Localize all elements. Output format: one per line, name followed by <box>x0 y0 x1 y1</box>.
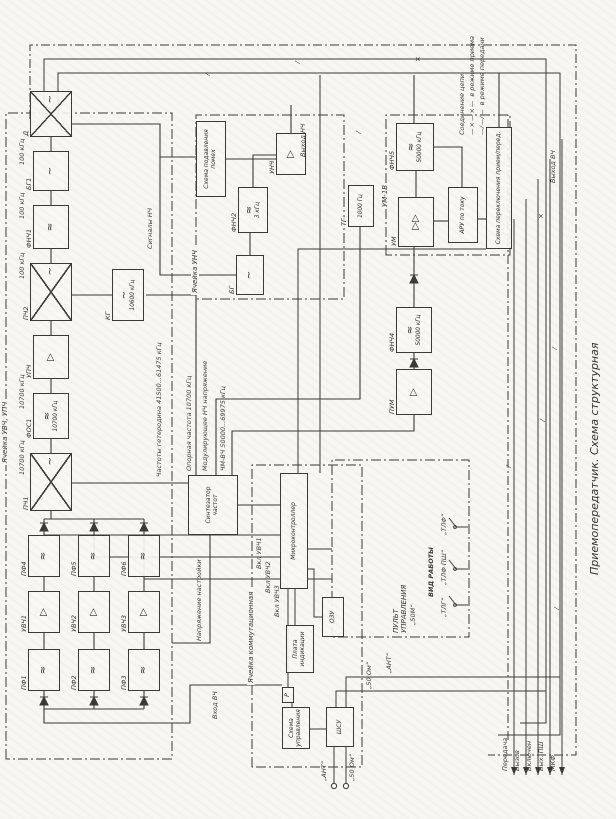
block-fnch5-freq: 50000 кГц <box>417 132 423 163</box>
block-unch-label: УНЧ <box>268 160 276 175</box>
detector-icon: ~ <box>46 95 56 103</box>
block-fnch2-freq: 3 кГц <box>255 202 261 218</box>
label-mode-tlf: „ТЛФ“ <box>441 514 448 535</box>
block-upch-label: УПЧ <box>25 364 33 379</box>
label-line-ant: „АНТ“ <box>386 653 393 673</box>
block-pf1-label: ПФ1 <box>20 674 28 691</box>
amplifier-icon: ▷ <box>89 608 99 616</box>
block-tg-label: ТГ <box>340 217 348 227</box>
label-rf-output: Выход ВЧ <box>550 150 557 183</box>
block-pf4: ПФ4 ≈ <box>28 535 60 577</box>
bandpass-filter-icon: ≈ <box>39 666 49 674</box>
block-pf2-label: ПФ2 <box>70 674 78 691</box>
block-uvch2: УВЧ2 ▷ <box>78 591 110 633</box>
block-pf4-label: ПФ4 <box>20 560 28 577</box>
label-enable-uvch2: Вкл УВЧ2 <box>265 561 272 593</box>
block-fos1-freq: 10700 кГц <box>53 401 59 432</box>
label-reference-freq: Опорная частота 10700 кГц <box>186 376 193 471</box>
bandpass-filter-icon: ≈ <box>139 552 149 560</box>
label-f100a: 100 кГц <box>19 253 26 279</box>
block-fnch1-label: ФНЧ1 <box>25 228 33 249</box>
crystal-oscillator-icon: ~ <box>120 291 130 299</box>
mixer-icon: ~ <box>46 267 56 275</box>
legend-rx-text: в режиме приема <box>468 36 476 97</box>
block-pum-label: ПУМ <box>388 399 396 415</box>
block-fnch2: ФНЧ2 ≈ 3 кГц <box>238 187 268 233</box>
label-mode-tlg: „ТЛГ“ <box>441 598 448 617</box>
label-output-transmit: Передача <box>502 738 509 771</box>
block-noise-suppressor: Схема подавления помех <box>196 121 226 197</box>
block-pch1: ПЧ1 ~ <box>30 453 72 511</box>
block-control-circuit: Схема управления <box>282 707 310 749</box>
svg-text:⁄: ⁄ <box>551 346 559 351</box>
block-pf6-label: ПФ6 <box>120 560 128 577</box>
lowpass-filter-icon: ≈ <box>46 223 56 231</box>
block-bg-label: БГ <box>228 285 236 295</box>
panel-contact-symbols <box>449 518 468 606</box>
label-enable-uvch1: Вкл УВЧ1 <box>256 537 263 569</box>
label-enable-uvch3: Вкл УВЧ3 <box>274 585 281 617</box>
block-pf6: ПФ6 ≈ <box>128 535 160 577</box>
block-d-label: Д <box>22 130 30 137</box>
cell-label-pa: УМ-1В <box>381 183 389 209</box>
block-bg1-label: БГ1 <box>25 177 33 191</box>
block-tg: ТГ 1000 Гц <box>348 185 374 227</box>
label-mode-group: ВИД РАБОТЫ <box>428 547 435 597</box>
legend-rx-row: —×—×—в режиме приема <box>468 7 478 135</box>
lowpass-filter-icon: ≈ <box>245 206 255 214</box>
block-relay: Р <box>282 687 294 703</box>
block-ram: ОЗУ <box>322 597 344 637</box>
block-uvch1-label: УВЧ1 <box>20 614 28 633</box>
amplifier-icon: ▷ <box>286 150 296 158</box>
block-microcontroller: Микроконтроллер <box>280 473 308 589</box>
label-f100b: 100 кГц <box>19 193 26 219</box>
scanned-schematic-page: ⁄⁄⁄ ⁄⁄⁄ ××⁄ ⁄ Ячейка УВЧ, УПЧ ПФ1 ≈ УВЧ1… <box>0 0 616 819</box>
mixer-icon: ~ <box>46 457 56 465</box>
block-fnch2-label: ФНЧ2 <box>230 212 238 233</box>
label-f10700a: 10700 кГц <box>19 440 26 475</box>
crystal-filter-icon: ≈ <box>43 412 53 420</box>
block-uvch1: УВЧ1 ▷ <box>28 591 60 633</box>
generator-icon: ~ <box>46 167 56 175</box>
rotated-drawing-canvas: ⁄⁄⁄ ⁄⁄⁄ ××⁄ ⁄ Ячейка УВЧ, УПЧ ПФ1 ≈ УВЧ1… <box>0 0 616 819</box>
legend-title: Соединение цепи: <box>458 7 468 135</box>
output-wires <box>514 139 562 775</box>
block-fos1-label: ФОС1 <box>25 418 33 439</box>
block-um-label: УМ <box>390 235 398 247</box>
block-fos1: ФОС1 ≈ 10700 кГц <box>33 393 69 439</box>
schematic-wiring-layer: ⁄⁄⁄ ⁄⁄⁄ ××⁄ ⁄ <box>0 0 616 819</box>
block-rx-tx-switch: Схема переключения прием/перед. <box>486 127 512 249</box>
block-fnch4-label: ФНЧ4 <box>388 332 396 353</box>
block-fnch4: ФНЧ4 ≈ 50000 кГц <box>396 307 432 353</box>
block-uvch3: УВЧ3 ▷ <box>128 591 160 633</box>
lowpass-filter-icon: ≈ <box>406 326 416 334</box>
label-terminal-ant: „АНТ“ <box>321 761 328 781</box>
lowpass-filter-icon: ≈ <box>407 143 417 151</box>
block-kg-freq: 10600 кГц <box>130 280 136 311</box>
legend: Соединение цепи: —×—×—в режиме приема —⁄… <box>458 7 487 135</box>
block-pch1-label: ПЧ1 <box>22 496 30 511</box>
block-tg-freq: 1000 Гц <box>358 194 364 218</box>
label-af-signals: Сигналы НЧ <box>147 208 154 249</box>
block-pch2: ПЧ2 ~ <box>30 263 72 321</box>
label-output-squelch: Вых. ПШ <box>538 742 545 771</box>
label-line-50ohm: „50 Ом“ <box>366 662 373 689</box>
label-rf-input: Вход ВЧ <box>212 691 219 719</box>
svg-text:⁄: ⁄ <box>355 130 363 135</box>
svg-text:×: × <box>537 213 545 219</box>
block-shsu: ШСУ <box>326 707 354 747</box>
block-fnch4-freq: 50000 кГц <box>416 315 422 346</box>
svg-text:×: × <box>414 56 422 62</box>
label-output-on: Включен <box>526 741 533 771</box>
block-bg1: БГ1 ~ <box>33 151 69 191</box>
legend-tx-marker: —⁄—⁄— <box>478 108 486 135</box>
bandpass-filter-icon: ≈ <box>89 552 99 560</box>
cell-label-comm: Ячейка коммутационная <box>247 590 255 685</box>
block-d: Д ~ <box>30 91 72 137</box>
label-heterodyne-freqs: Частоты гетеродина 41500...61475 кГц <box>156 342 163 477</box>
bandpass-filter-icon: ≈ <box>89 666 99 674</box>
label-fm-rf: ЧМ-ВЧ 50000...69975 кГц <box>220 386 227 471</box>
svg-text:⁄: ⁄ <box>505 464 513 469</box>
block-um: УМ ▷▷ <box>398 197 434 247</box>
amplifier-icon: ▷ <box>46 353 56 361</box>
label-f10700b: 10700 кГц <box>19 374 26 409</box>
label-af-output: Выход НЧ <box>300 124 307 157</box>
amplifier-icon: ▷ <box>139 608 149 616</box>
block-pf3-label: ПФ3 <box>120 674 128 691</box>
block-pf5-label: ПФ5 <box>70 560 78 577</box>
label-output-mic: МКФ <box>550 755 557 771</box>
block-pf3: ПФ3 ≈ <box>128 649 160 691</box>
block-pch2-label: ПЧ2 <box>22 306 30 321</box>
label-tuning-voltage: Напряжение настройки <box>196 559 203 641</box>
bandpass-filter-icon: ≈ <box>139 666 149 674</box>
block-display-board: Плата индикации <box>286 625 314 673</box>
block-agc: АРУ по току <box>448 187 478 243</box>
cell-label-rx: Ячейка УВЧ, УПЧ <box>1 400 9 465</box>
label-mode-50m: „50М“ <box>410 604 417 625</box>
block-pum: ПУМ ▷ <box>396 369 432 415</box>
block-fnch1: ФНЧ1 ≈ <box>33 205 69 249</box>
amplifier-icon: ▷ <box>39 608 49 616</box>
label-terminal-50ohm: „50 Ом“ <box>349 754 356 781</box>
cell-label-panel: ПУЛЬТ УПРАВЛЕНИЯ <box>392 577 408 635</box>
block-uvch2-label: УВЧ2 <box>70 614 78 633</box>
antenna-terminals <box>331 783 348 788</box>
amplifier-icon: ▷ <box>409 388 419 396</box>
block-kg-label: КГ <box>104 311 112 321</box>
legend-tx-text: в режиме передачи <box>478 37 486 105</box>
block-uvch3-label: УВЧ3 <box>120 614 128 633</box>
block-synthesizer: Синтезатор частот <box>188 475 238 535</box>
generator-icon: ~ <box>245 271 255 279</box>
label-output-call: Вызов <box>514 750 521 771</box>
dual-amplifier-icon: ▷▷ <box>411 214 421 229</box>
legend-tx-row: —⁄—⁄—в режиме передачи <box>478 7 488 135</box>
cell-label-af: Ячейка УНЧ <box>191 248 199 295</box>
block-fnch5: ФНЧ5 ≈ 50000 кГц <box>396 123 434 171</box>
drawing-title: Приемопередатчик. Схема структурная <box>588 343 601 575</box>
block-pf2: ПФ2 ≈ <box>78 649 110 691</box>
block-kg: КГ ~ 10600 кГц <box>112 269 144 321</box>
block-upch: УПЧ ▷ <box>33 335 69 379</box>
block-fnch5-label: ФНЧ5 <box>388 150 396 171</box>
label-mode-tlf-psh: „ТЛФ ПШ“ <box>441 550 448 585</box>
label-f100c: 100 кГц <box>19 139 26 165</box>
block-bg: БГ ~ <box>236 255 264 295</box>
block-pf5: ПФ5 ≈ <box>78 535 110 577</box>
label-modulating-af: Модулирующее НЧ напряжение <box>202 361 209 471</box>
bandpass-filter-icon: ≈ <box>39 552 49 560</box>
svg-text:⁄: ⁄ <box>294 60 302 65</box>
block-pf1: ПФ1 ≈ <box>28 649 60 691</box>
legend-rx-marker: —×—×— <box>468 100 476 135</box>
